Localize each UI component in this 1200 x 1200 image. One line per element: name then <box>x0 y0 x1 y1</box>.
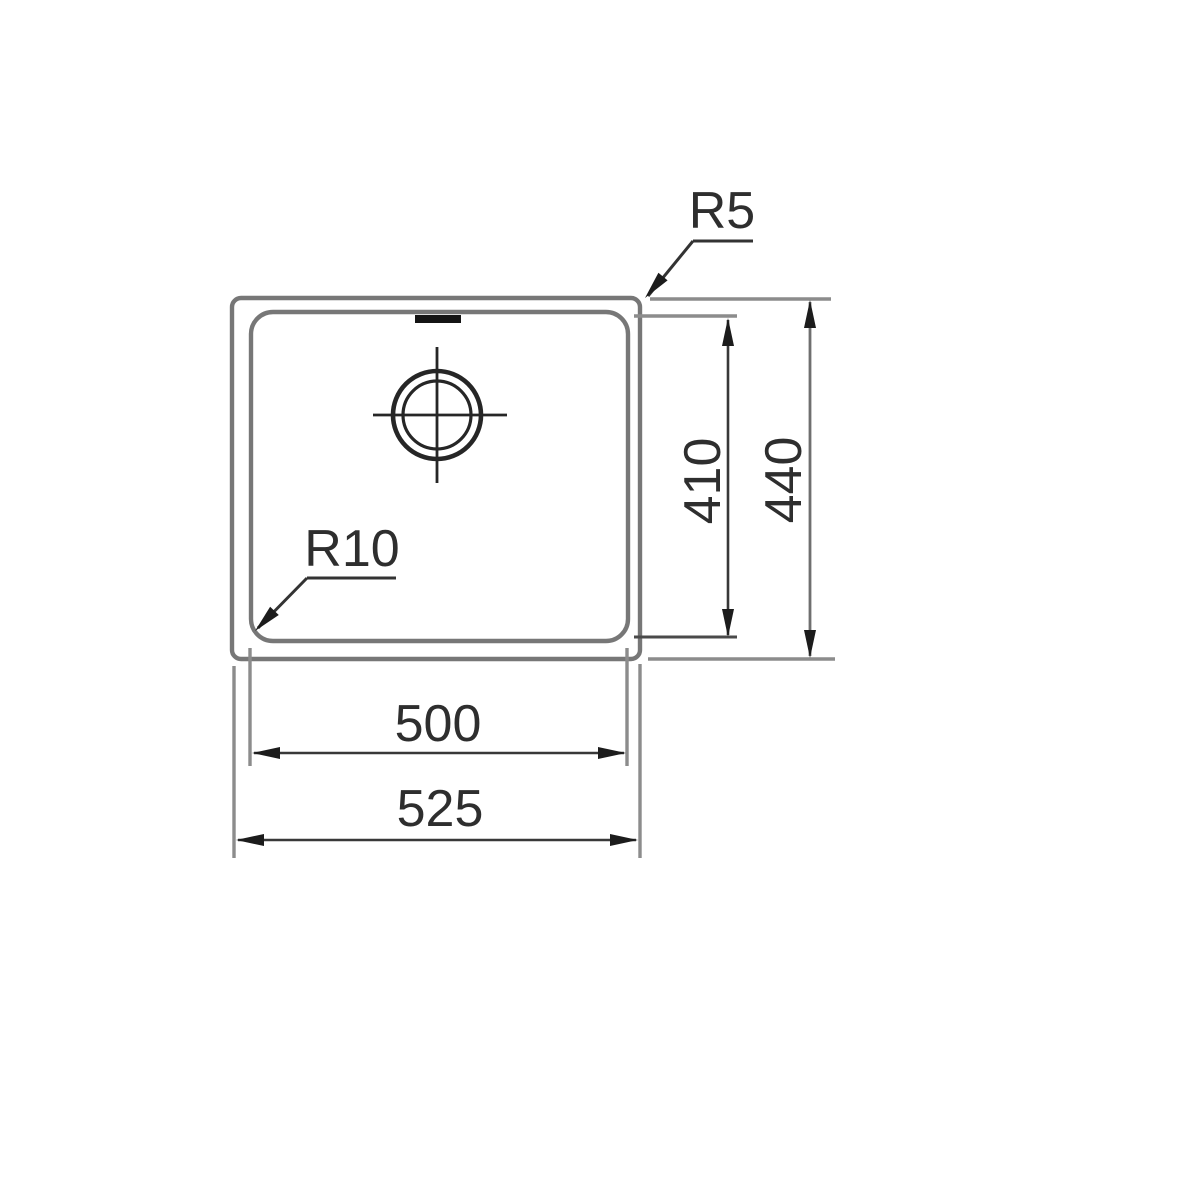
inner-height-value: 410 <box>674 438 732 525</box>
r10-label: R10 <box>304 520 399 578</box>
dim-410-arrow-bottom <box>722 609 734 637</box>
drawing-canvas: R5 R10 410 440 <box>0 0 1200 1200</box>
inner-width-value: 500 <box>395 695 482 753</box>
horizontal-dimensions: 500 525 <box>234 648 640 858</box>
dim-500-arrow-right <box>598 747 626 759</box>
r10-callout: R10 <box>251 520 400 635</box>
r5-callout: R5 <box>640 182 755 302</box>
outer-height-value: 440 <box>755 437 813 524</box>
r5-label: R5 <box>689 182 755 240</box>
drain-symbol <box>373 347 507 483</box>
dim-525-arrow-left <box>236 834 264 846</box>
dim-500-arrow-left <box>252 747 280 759</box>
dim-440-arrow-bottom <box>804 630 816 658</box>
vertical-dimensions: 410 440 <box>634 299 835 659</box>
dim-440-arrow-top <box>804 300 816 328</box>
dim-410-arrow-top <box>722 318 734 346</box>
outer-width-value: 525 <box>397 780 484 838</box>
dim-525-arrow-right <box>610 834 638 846</box>
sink-bowl-rect <box>251 312 628 641</box>
bowl-top-tick-mark <box>415 315 461 323</box>
sink-dimension-diagram: R5 R10 410 440 <box>0 0 1200 1200</box>
